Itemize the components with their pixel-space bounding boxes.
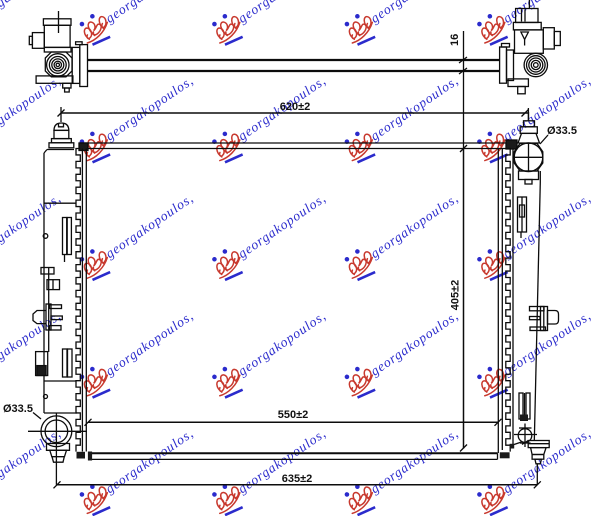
svg-text:550±2: 550±2 <box>278 409 309 421</box>
svg-text:16: 16 <box>449 34 461 46</box>
svg-text:405±2: 405±2 <box>450 280 462 311</box>
svg-text:635±2: 635±2 <box>282 473 313 485</box>
svg-text:Ø33.5: Ø33.5 <box>3 403 33 415</box>
svg-text:Ø33.5: Ø33.5 <box>547 125 577 137</box>
svg-text:620±2: 620±2 <box>280 101 311 113</box>
